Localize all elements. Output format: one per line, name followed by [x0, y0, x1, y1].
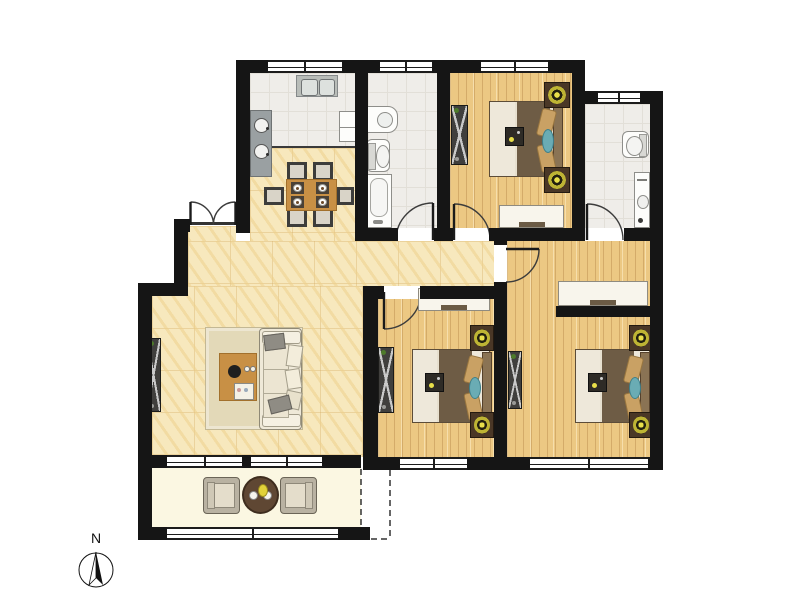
- plate-dot: [321, 201, 324, 204]
- balcony-armchair-left: [203, 477, 240, 514]
- balcony-sliding-door-right: [251, 455, 322, 468]
- balcony-tea-table: [242, 476, 279, 514]
- bathroom2-window: [598, 91, 640, 104]
- balcony-armchair-right: [280, 477, 317, 514]
- desk-ledge: [441, 305, 467, 310]
- flower-icon: [258, 484, 268, 497]
- chair-seat: [290, 211, 304, 224]
- tray-dot-yellow: [592, 383, 597, 388]
- bedroom1-window: [481, 60, 548, 73]
- armchair-seat: [213, 483, 235, 508]
- tray-dot-white: [437, 377, 440, 380]
- tray-dot-white: [517, 131, 520, 134]
- chair-seat: [316, 165, 330, 178]
- teal-accent-pillow: [542, 129, 554, 153]
- chair-seat: [290, 165, 304, 178]
- bedroom1-nightstand-lamp-bottom: [544, 167, 570, 193]
- seat-divider: [264, 393, 288, 394]
- entry-door-right-arc: [214, 202, 236, 224]
- plate-dot: [296, 187, 299, 190]
- sofa-throw-gray: [263, 333, 286, 351]
- compass: N: [65, 528, 127, 596]
- balcony-sliding-door-left: [167, 455, 242, 468]
- wall-left-upper: [236, 60, 250, 233]
- cooktop-knob-2: [266, 153, 269, 156]
- teacup: [249, 491, 258, 500]
- bathroom1-door-arc: [396, 203, 433, 240]
- wall-balcony-bottom-right: [338, 527, 370, 540]
- chair-seat: [340, 190, 351, 202]
- armchair-back: [207, 482, 215, 509]
- wall-bottom-3: [648, 457, 663, 470]
- chair-seat: [316, 211, 330, 224]
- toilet-bowl: [626, 136, 643, 156]
- wall-bottom-2: [467, 457, 530, 470]
- place-setting: [316, 182, 329, 194]
- knob: [382, 405, 386, 409]
- vanity-faucet: [637, 179, 647, 181]
- knob: [455, 157, 459, 161]
- sink-basin-right: [319, 79, 335, 96]
- bedroom2-wardrobe: [378, 347, 394, 413]
- bedroom3-tv-cabinet: [508, 351, 522, 409]
- bedroom1-wardrobe: [451, 105, 468, 165]
- armchair-seat: [285, 483, 307, 508]
- wall-balcony-bottom-left: [138, 527, 167, 540]
- bedroom3-door-arc: [506, 249, 539, 282]
- wall-bath2-top-left: [578, 91, 598, 104]
- bathtub-faucet: [373, 220, 383, 224]
- sofa: [259, 328, 302, 430]
- knob: [512, 401, 516, 405]
- bed-tray: [425, 373, 444, 392]
- bed-tray: [505, 127, 524, 146]
- tray-dot-white: [600, 377, 603, 380]
- floor-plan: N: [0, 0, 798, 600]
- desk-ledge: [519, 222, 545, 227]
- wall-hall-1: [368, 228, 398, 241]
- wall-bed2-bed3-lower: [494, 282, 507, 470]
- toilet-tank: [368, 143, 376, 170]
- bedroom2-nightstand-lamp-bottom: [470, 412, 494, 438]
- sofa-back-pillow: [285, 368, 303, 390]
- bedroom1-bed: [489, 101, 561, 177]
- tray-cup: [244, 388, 248, 392]
- bedroom2-nightstand-lamp-top: [470, 325, 494, 351]
- sofa-back-pillow: [286, 344, 304, 368]
- coffee-table: [219, 353, 257, 401]
- teacup: [250, 366, 256, 372]
- wall-bed1-bath2: [572, 60, 585, 241]
- bathroom2-door-arc: [587, 204, 623, 240]
- teapot: [228, 365, 241, 378]
- sink-basin-left: [301, 79, 318, 96]
- burner-1: [254, 118, 269, 133]
- bedroom2-window: [400, 457, 467, 470]
- teal-accent-pillow: [629, 377, 641, 399]
- dining-chair-left: [264, 187, 284, 205]
- compass-north-label: N: [91, 530, 101, 546]
- teal-accent-pillow: [469, 377, 481, 399]
- vanity-item: [638, 218, 643, 223]
- wall-balcony-divider-post: [242, 455, 251, 468]
- wall-left-lower: [138, 283, 152, 540]
- bedroom1-door-arc: [454, 204, 490, 240]
- burner-2: [254, 144, 269, 159]
- wall-balcony-divider-right: [322, 455, 361, 468]
- wall-bedroom3-desk-stub: [556, 306, 650, 317]
- wall-hall-2: [434, 228, 453, 241]
- bedroom2-door-arc: [384, 292, 421, 329]
- wall-kitchen-bath1: [355, 60, 368, 241]
- tray-cup: [237, 388, 241, 392]
- bathroom2-toilet: [622, 131, 649, 158]
- fridge-divider: [340, 127, 355, 128]
- bathroom2-vanity: [634, 172, 650, 228]
- plate-dot: [321, 187, 324, 190]
- armchair-back: [305, 482, 313, 509]
- bedroom1-nightstand-lamp-top: [544, 82, 570, 108]
- bedroom3-desk: [558, 281, 648, 306]
- desk-ledge: [590, 300, 616, 305]
- place-setting: [291, 196, 304, 208]
- bedroom1-desk: [499, 205, 564, 228]
- bathroom1-washbasin: [367, 106, 398, 133]
- wall-bed2-bed3-upper: [494, 228, 507, 245]
- plant-icon: [381, 350, 386, 355]
- balcony-window: [167, 527, 338, 540]
- bathtub-inner: [370, 178, 388, 217]
- tray-dot-yellow: [429, 383, 434, 388]
- plate-dot: [296, 201, 299, 204]
- toilet-bowl: [376, 145, 390, 168]
- wall-bottom-1: [363, 457, 400, 470]
- cooktop-knob-1: [266, 127, 269, 130]
- plant-icon: [511, 354, 516, 359]
- vanity-basin: [637, 195, 649, 209]
- serving-tray: [234, 383, 254, 400]
- wall-right: [650, 91, 663, 470]
- dining-chair-right: [337, 187, 354, 205]
- wall-bedroom2-left: [363, 286, 378, 470]
- wall-bath1-bed1: [437, 60, 450, 241]
- plant-icon: [454, 108, 459, 113]
- chair-seat: [267, 190, 281, 202]
- wall-bedroom2-top-corner: [363, 286, 384, 299]
- door-swing-overlay: [0, 0, 798, 600]
- bed-tray: [588, 373, 607, 392]
- kitchen-window: [268, 60, 342, 73]
- place-setting: [291, 182, 304, 194]
- bedroom3-window: [530, 457, 648, 470]
- tray-dot-yellow: [509, 137, 514, 142]
- bathroom1-toilet: [366, 139, 390, 172]
- compass-needle-light: [89, 552, 96, 585]
- entry-door-left-arc: [191, 202, 214, 225]
- kitchen-sink-counter: [296, 75, 338, 97]
- wall-hall-4: [624, 228, 663, 241]
- fridge: [339, 111, 356, 142]
- basin-bowl: [377, 112, 393, 128]
- bathroom1-bathtub: [366, 174, 392, 228]
- cooktop: [250, 110, 272, 177]
- compass-needle-dark: [96, 552, 103, 585]
- bathroom1-window: [380, 60, 432, 73]
- place-setting: [316, 196, 329, 208]
- wall-balcony-divider-left: [138, 455, 167, 468]
